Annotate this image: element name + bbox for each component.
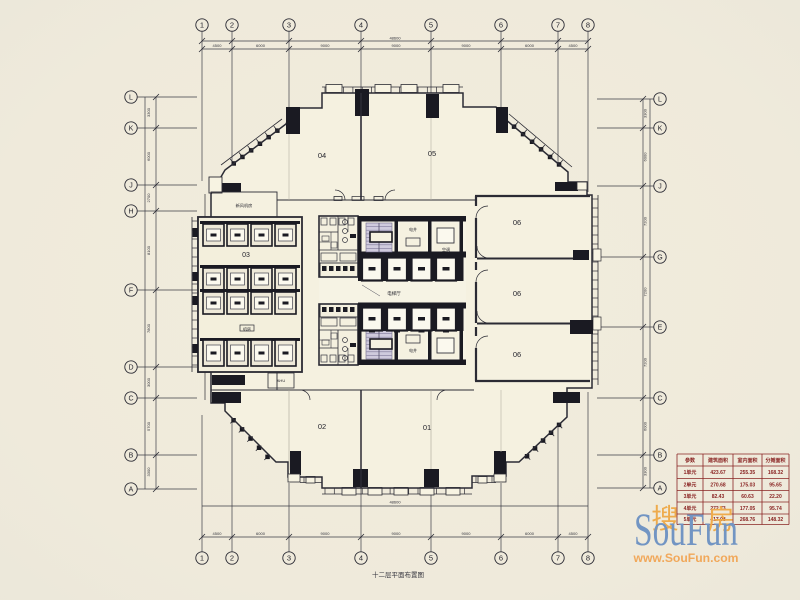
svg-text:4500: 4500 [213,43,223,48]
svg-text:C: C [128,396,133,403]
svg-text:9000: 9000 [321,43,331,48]
svg-text:C: C [657,396,662,403]
svg-text:6000: 6000 [256,43,266,48]
svg-text:A: A [658,486,663,493]
svg-text:95.65: 95.65 [769,482,782,488]
svg-text:7800: 7800 [146,323,151,333]
svg-text:95.74: 95.74 [769,506,782,512]
svg-text:8100: 8100 [146,245,151,255]
svg-text:www.SouFun.com: www.SouFun.com [632,553,738,565]
svg-text:A: A [129,487,134,494]
svg-text:8: 8 [586,21,590,30]
svg-text:6: 6 [499,554,503,563]
svg-text:2: 2 [230,554,234,563]
svg-text:2700: 2700 [146,193,151,203]
svg-text:K: K [658,126,663,133]
svg-text:参数: 参数 [685,457,696,464]
svg-text:6000: 6000 [146,151,151,161]
svg-text:K: K [129,126,134,133]
svg-text:06: 06 [513,218,521,227]
svg-text:机房: 机房 [243,326,251,332]
svg-text:L: L [129,95,133,102]
svg-text:3单元: 3单元 [684,493,697,500]
svg-text:L: L [658,97,662,104]
svg-text:F: F [129,288,133,295]
svg-text:4: 4 [359,21,363,30]
svg-text:室内面积: 室内面积 [737,457,757,464]
svg-text:H: H [128,209,133,216]
svg-text:4500: 4500 [213,531,223,536]
svg-text:01: 01 [423,423,431,432]
svg-text:5: 5 [429,21,433,30]
svg-text:J: J [658,184,662,191]
svg-text:2: 2 [230,21,234,30]
svg-text:6: 6 [499,21,503,30]
svg-text:177.05: 177.05 [740,506,756,512]
svg-text:82.43: 82.43 [712,494,725,500]
svg-text:9000: 9000 [392,43,402,48]
svg-text:3: 3 [287,554,291,563]
svg-text:1: 1 [200,554,204,563]
svg-text:22.20: 22.20 [769,494,782,500]
svg-text:48600: 48600 [389,36,401,41]
svg-text:06: 06 [513,289,521,298]
svg-text:3300: 3300 [146,467,151,477]
svg-text:05: 05 [428,149,436,158]
svg-text:4500: 4500 [569,43,579,48]
svg-text:分摊面积: 分摊面积 [765,457,785,464]
svg-text:1: 1 [200,21,204,30]
svg-text:建筑面积: 建筑面积 [707,457,728,464]
svg-text:270.68: 270.68 [710,482,726,488]
svg-text:电梯厅: 电梯厅 [387,290,401,297]
svg-text:3000: 3000 [146,377,151,387]
svg-text:04: 04 [318,151,326,160]
svg-text:电井: 电井 [409,347,417,353]
svg-text:电井: 电井 [409,226,417,232]
svg-text:1单元: 1单元 [684,469,697,476]
svg-text:3300: 3300 [643,108,648,118]
svg-text:E: E [658,325,663,332]
svg-text:B: B [658,453,663,460]
svg-text:6000: 6000 [643,152,648,162]
svg-text:6000: 6000 [256,531,266,536]
svg-text:2单元: 2单元 [684,481,697,488]
svg-text:9000: 9000 [321,531,331,536]
svg-text:06: 06 [513,350,521,359]
svg-text:48600: 48600 [389,500,401,505]
svg-text:B: B [129,453,134,460]
svg-text:G: G [657,255,662,262]
svg-text:7: 7 [556,554,560,563]
svg-text:4500: 4500 [569,531,579,536]
svg-text:7200: 7200 [643,357,648,367]
svg-text:8: 8 [586,554,590,563]
svg-text:9000: 9000 [462,531,472,536]
svg-text:3300: 3300 [643,466,648,476]
svg-text:5700: 5700 [146,421,151,431]
svg-text:3300: 3300 [146,107,151,117]
svg-text:148.32: 148.32 [768,517,784,523]
svg-text:7: 7 [556,21,560,30]
svg-text:十二层平面布置图: 十二层平面布置图 [372,570,424,579]
svg-text:AHU: AHU [277,378,286,383]
svg-text:02: 02 [318,422,326,431]
svg-text:168.32: 168.32 [768,470,784,476]
svg-text:03: 03 [242,252,250,259]
svg-text:空调: 空调 [442,246,450,252]
svg-text:5: 5 [429,554,433,563]
svg-text:9000: 9000 [392,531,402,536]
svg-text:60.63: 60.63 [741,494,754,500]
svg-text:4: 4 [359,554,363,563]
svg-text:423.67: 423.67 [710,470,726,476]
svg-text:9000: 9000 [462,43,472,48]
svg-text:J: J [129,183,133,190]
svg-text:D: D [128,365,133,372]
svg-text:268.76: 268.76 [740,517,756,523]
svg-text:255.35: 255.35 [740,470,756,476]
svg-text:6000: 6000 [643,421,648,431]
svg-text:3: 3 [287,21,291,30]
svg-text:175.03: 175.03 [740,482,756,488]
svg-text:6000: 6000 [525,531,535,536]
svg-text:7200: 7200 [643,216,648,226]
svg-text:SouFun: SouFun [634,504,738,556]
svg-text:7200: 7200 [643,287,648,297]
svg-text:新风机房: 新风机房 [236,202,253,209]
svg-text:6000: 6000 [525,43,535,48]
